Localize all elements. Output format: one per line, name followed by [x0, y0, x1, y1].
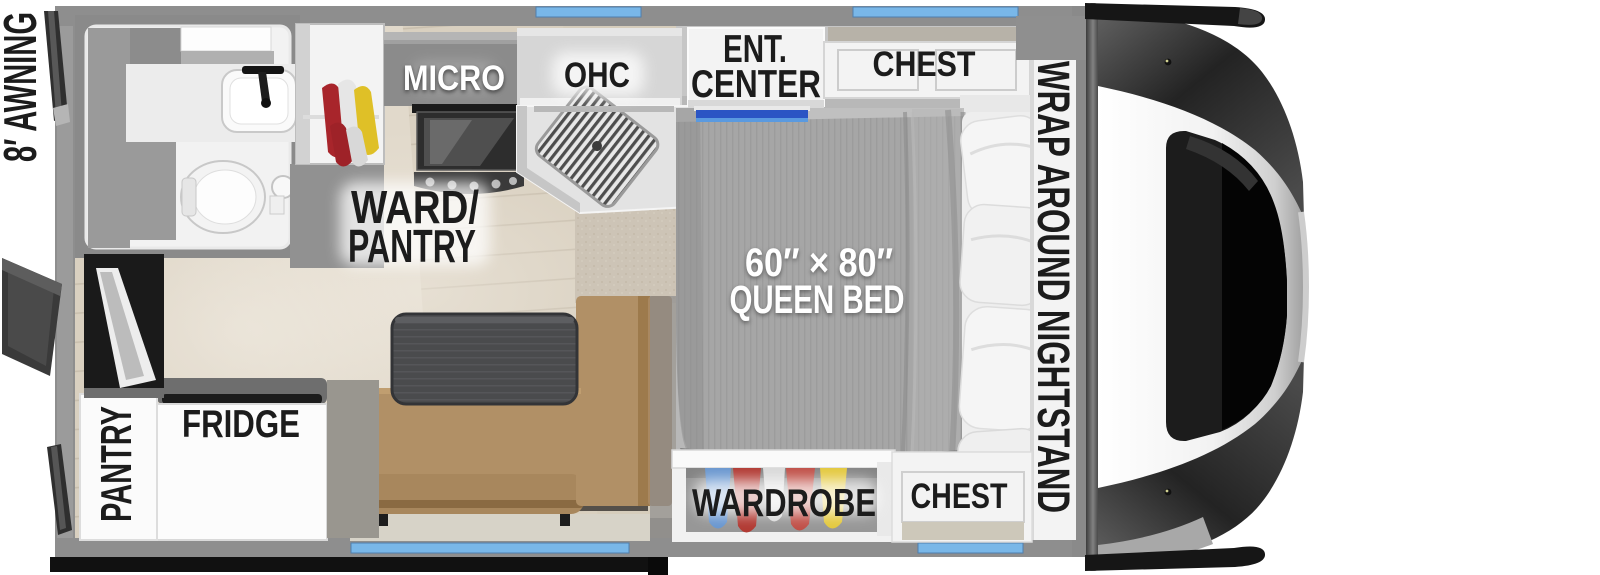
svg-text:PANTRY: PANTRY — [92, 406, 141, 522]
svg-text:OHC: OHC — [564, 55, 630, 95]
svg-text:QUEEN BED: QUEEN BED — [730, 278, 905, 322]
svg-text:8′ AWNING: 8′ AWNING — [0, 12, 46, 162]
svg-text:CHEST: CHEST — [911, 477, 1008, 516]
svg-text:PANTRY: PANTRY — [348, 220, 476, 272]
svg-text:FRIDGE: FRIDGE — [182, 403, 300, 446]
svg-text:CHEST: CHEST — [873, 45, 976, 84]
svg-text:WRAP AROUND NIGHTSTAND: WRAP AROUND NIGHTSTAND — [1028, 61, 1079, 513]
svg-text:CENTER: CENTER — [691, 63, 821, 106]
svg-text:MICRO: MICRO — [403, 58, 505, 98]
svg-text:WARDROBE: WARDROBE — [692, 482, 876, 525]
